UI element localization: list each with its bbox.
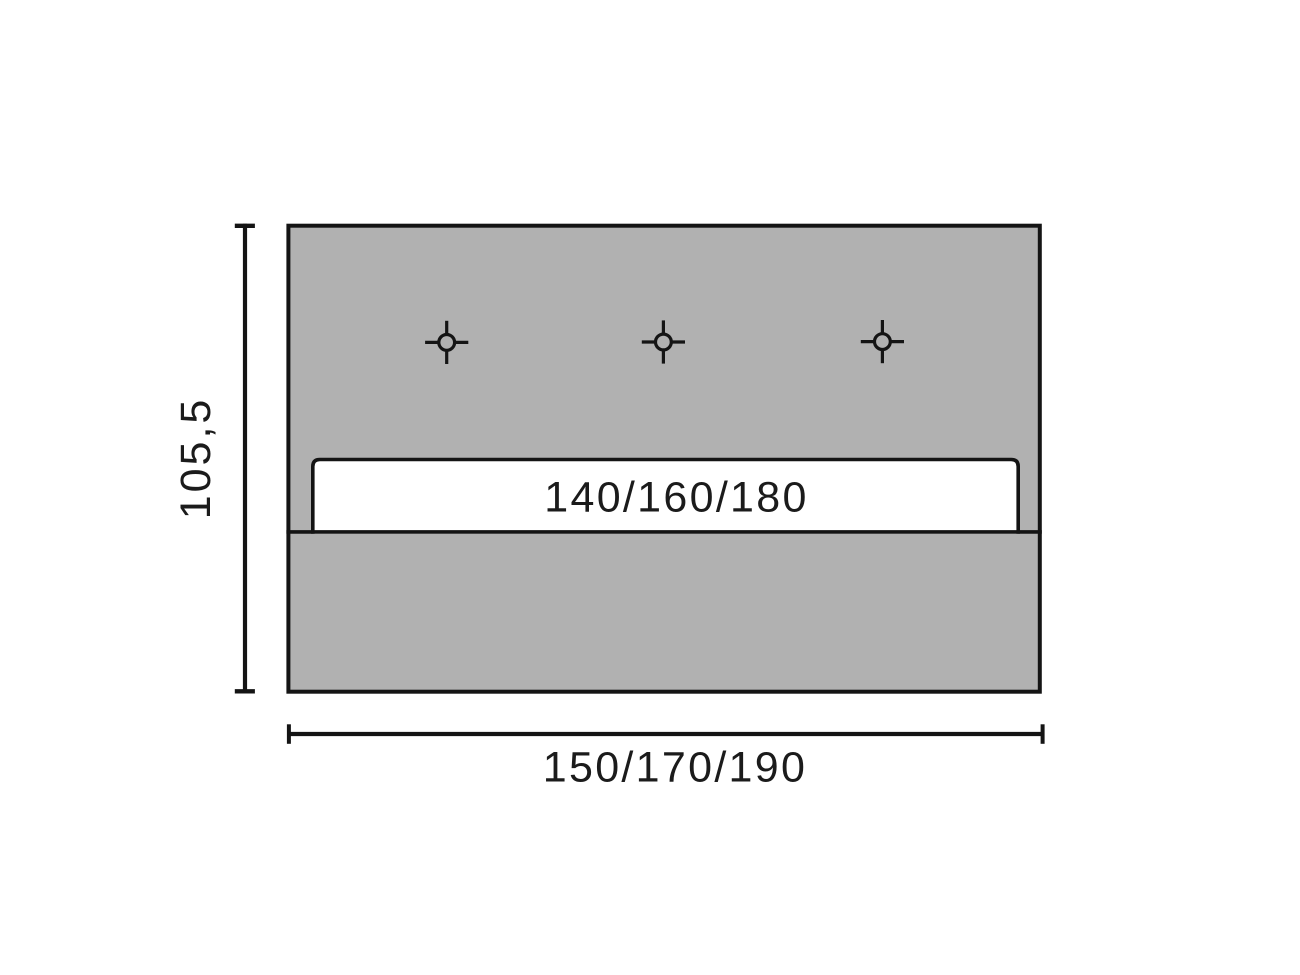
svg-text:140/160/180: 140/160/180	[544, 474, 808, 522]
svg-text:150/170/190: 150/170/190	[543, 743, 807, 791]
svg-text:105,5: 105,5	[172, 397, 220, 520]
